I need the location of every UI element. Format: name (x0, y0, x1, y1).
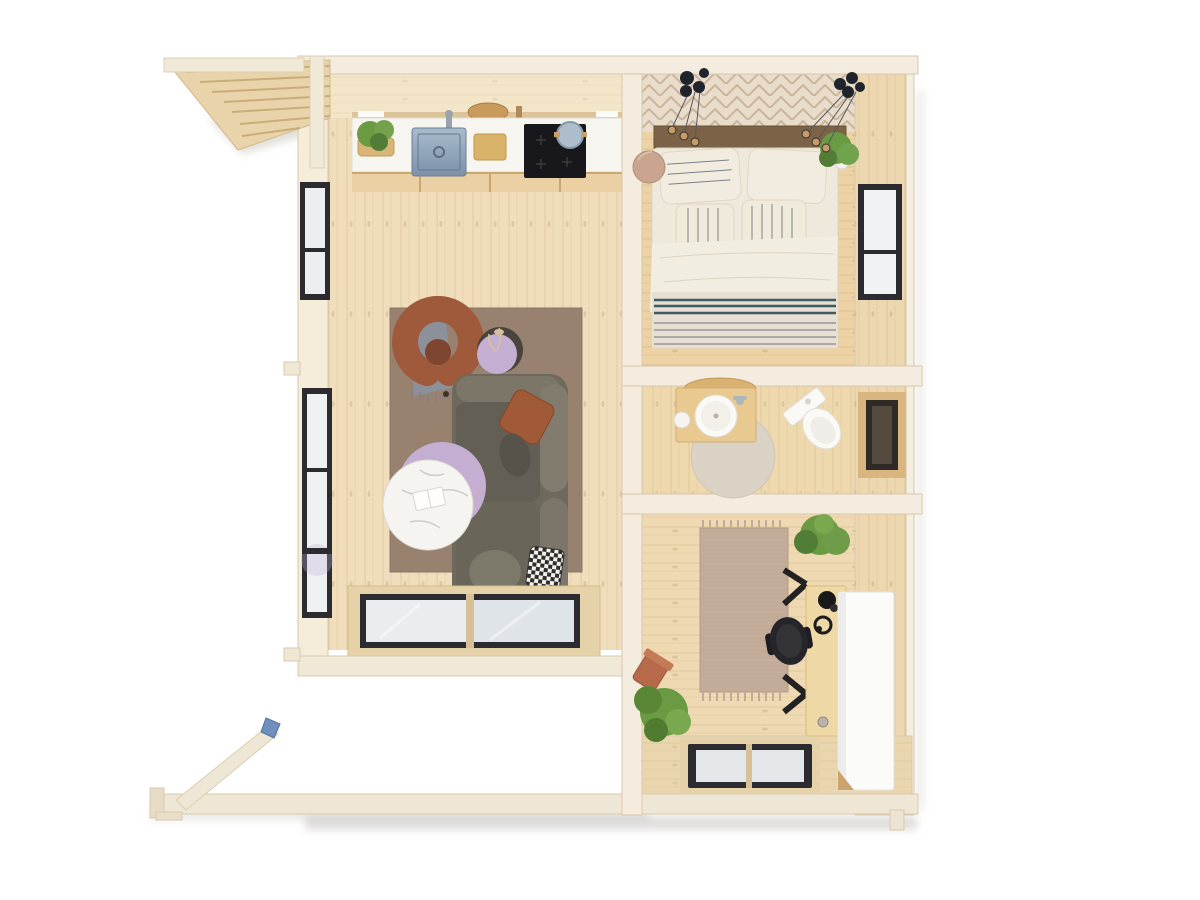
plant-foliage (665, 709, 691, 735)
pot-handle-left (554, 132, 560, 137)
bedroom-bath-wall (622, 366, 922, 386)
plant-foliage (634, 686, 662, 714)
shelf-led-left (358, 111, 384, 117)
top-wall (298, 56, 918, 74)
bathroom-window (858, 392, 906, 478)
sofa-backrest-1 (540, 384, 568, 492)
right-wall-edge (906, 74, 914, 815)
window-mullion (746, 744, 752, 788)
window-sash-2 (302, 548, 332, 554)
floorplan-svg (0, 0, 1200, 900)
base-beam (150, 794, 918, 814)
sofa-pillow-checker (525, 546, 564, 590)
window-sash (858, 250, 902, 254)
base-beam-tab (156, 812, 182, 820)
pot-handle-right (581, 132, 587, 137)
bulb (802, 130, 810, 138)
cooking-pot (557, 122, 583, 148)
desk-item (818, 717, 828, 727)
corner-stub-bottom (890, 810, 904, 830)
bath-office-wall (622, 494, 922, 514)
floorplan-render (0, 0, 1200, 900)
plant-foliage (644, 718, 668, 742)
door-glass-right (472, 600, 574, 642)
left-beam-stub-1 (284, 362, 300, 375)
wall-shadow (916, 90, 924, 810)
desk-lamp-head (830, 604, 838, 612)
patio-doors (348, 586, 600, 658)
armchair-seat (425, 339, 451, 365)
office-window (680, 738, 820, 794)
window-glass (864, 190, 896, 294)
bed-pillow-1 (658, 147, 741, 204)
window-glass (307, 394, 327, 612)
kitchen (328, 74, 622, 192)
bed-pillow-2 (747, 148, 828, 204)
cabinet-edge-shade (838, 592, 846, 790)
bulb (822, 144, 830, 152)
basin-drain (714, 414, 719, 419)
left-beam-stub-2 (284, 648, 300, 661)
living-window-bottom (301, 388, 333, 618)
kitchen-sink (412, 128, 466, 176)
cutting-board (474, 134, 506, 160)
living-window-top (300, 182, 330, 300)
corner-post (310, 56, 324, 168)
bulb (668, 126, 676, 134)
window-sash (302, 468, 332, 472)
bedroom-window (858, 184, 902, 300)
door-mullion (466, 594, 474, 648)
side-table-top (477, 334, 517, 374)
bulb (812, 138, 820, 146)
bulb (691, 138, 699, 146)
cup (674, 412, 690, 428)
living-bottom-beam (298, 656, 642, 676)
overhang-beam (164, 58, 304, 72)
bulb (680, 132, 688, 140)
white-cabinet (838, 592, 894, 790)
dried-flower (494, 329, 504, 335)
window-sash (300, 248, 330, 252)
window-glass (872, 406, 892, 464)
window-glass (305, 188, 325, 294)
shelf-led-right (596, 111, 618, 117)
living-room (383, 308, 582, 610)
bedside-stool (633, 151, 665, 183)
basin-faucet-head (736, 397, 744, 405)
headphones-ear (816, 626, 822, 632)
armchair-foot-1 (443, 391, 449, 397)
